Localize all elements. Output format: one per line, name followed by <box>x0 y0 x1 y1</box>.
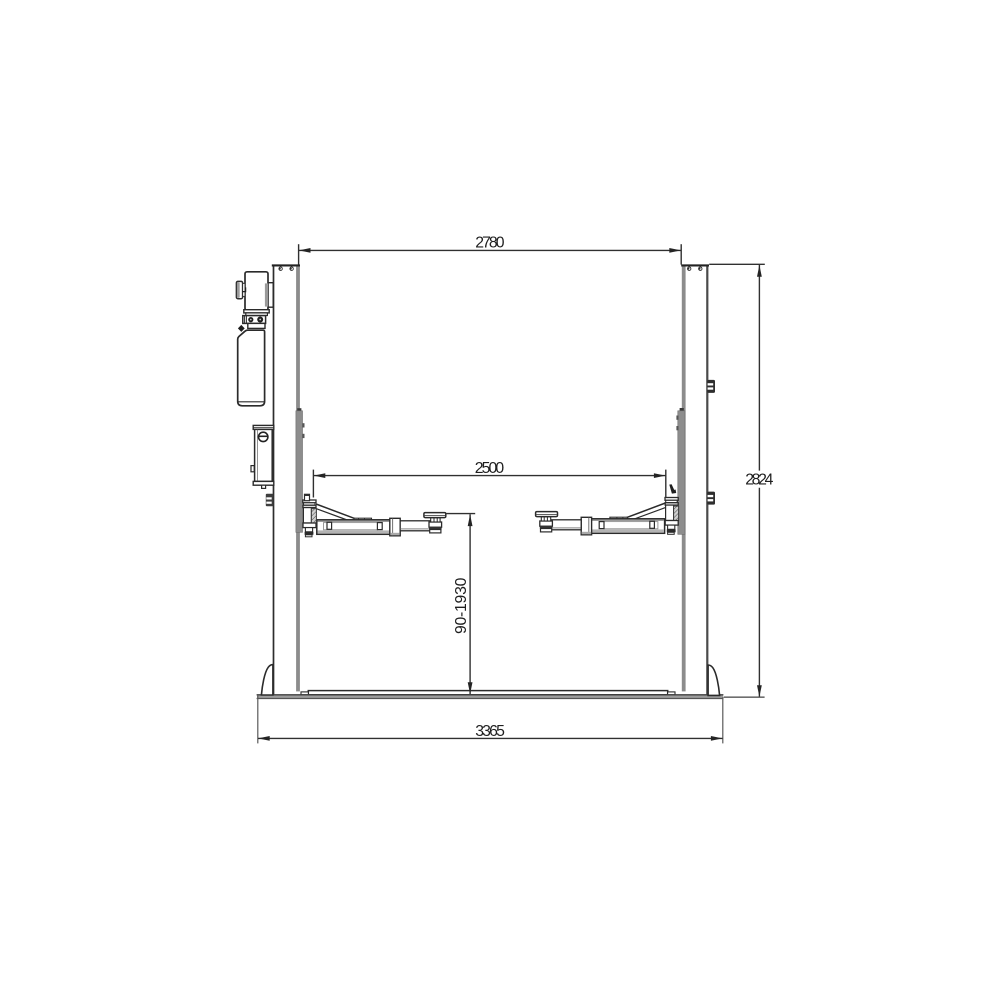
svg-text:2500: 2500 <box>475 460 505 477</box>
svg-text:90-1930: 90-1930 <box>453 577 470 634</box>
svg-text:2824: 2824 <box>745 472 773 489</box>
svg-text:3365: 3365 <box>475 723 505 740</box>
svg-text:2780: 2780 <box>475 234 504 251</box>
